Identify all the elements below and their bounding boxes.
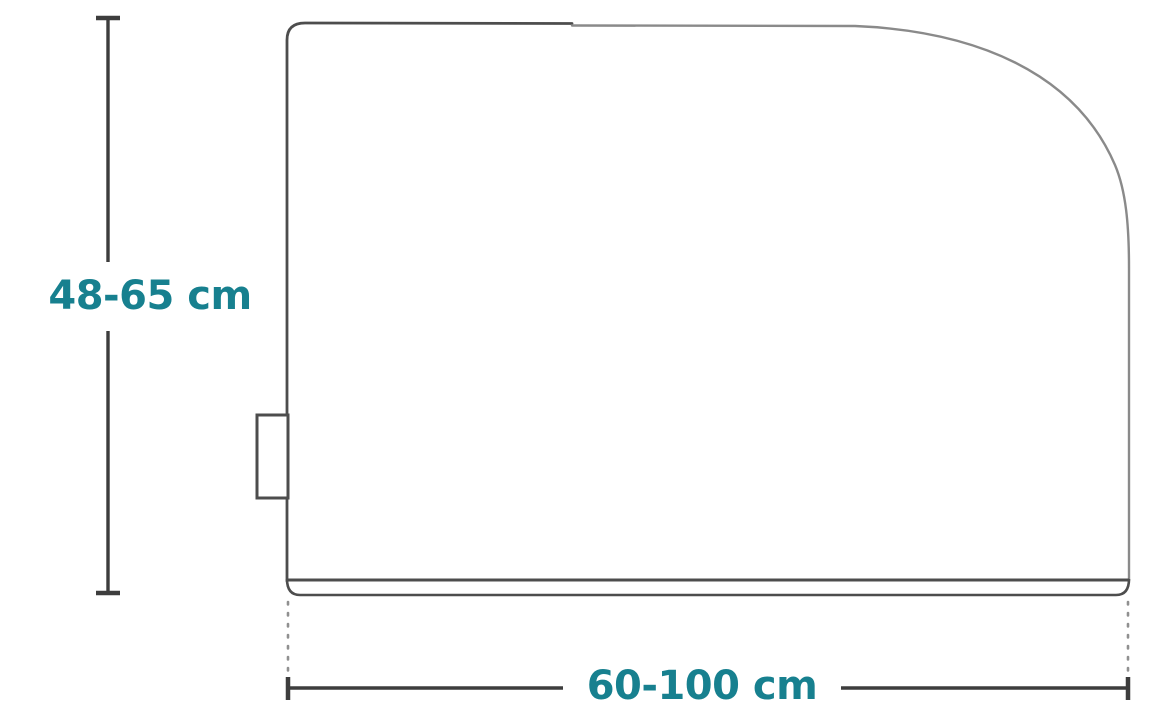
- diagram-canvas: [0, 0, 1154, 713]
- object-outline-top-right: [572, 26, 1129, 582]
- dimension-diagram: 48-65 cm 60-100 cm: [0, 0, 1154, 713]
- height-dimension-label: 48-65 cm: [48, 276, 251, 316]
- width-dimension-label: 60-100 cm: [587, 666, 818, 706]
- latch-rectangle: [257, 415, 288, 498]
- object-outline-left-top: [287, 23, 572, 581]
